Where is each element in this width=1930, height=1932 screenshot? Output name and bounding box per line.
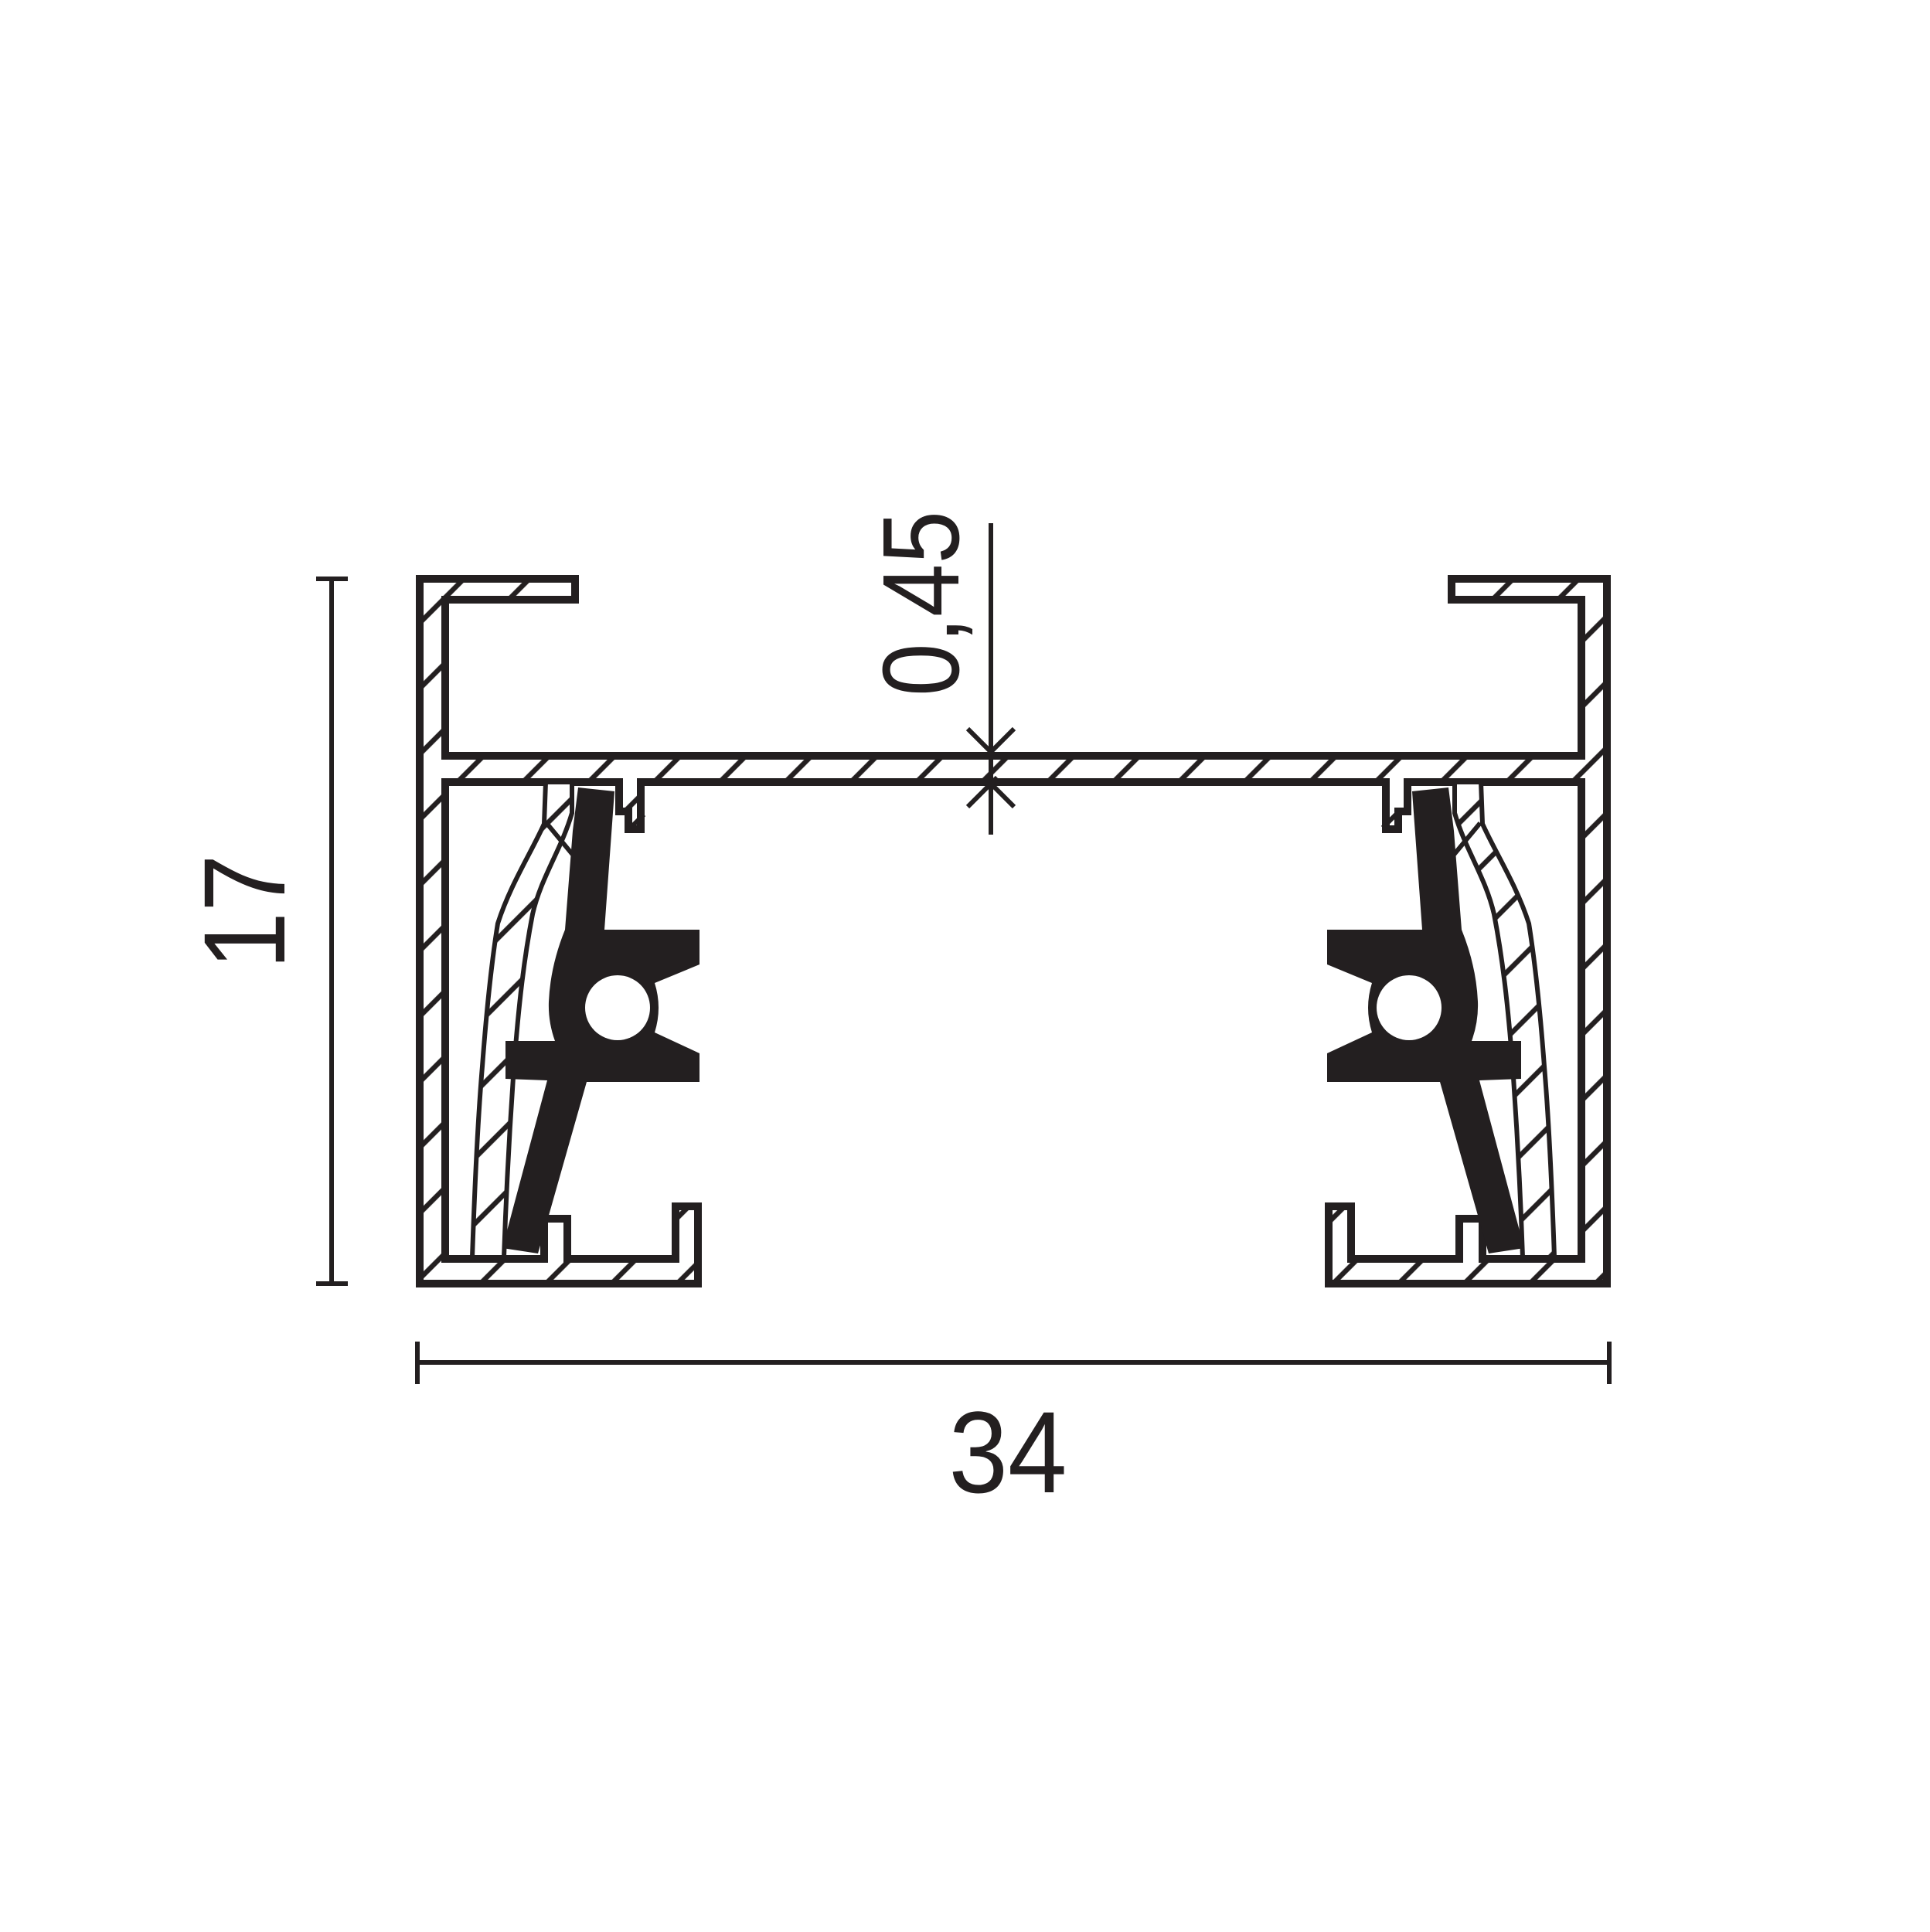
svg-text:0,45: 0,45: [859, 511, 982, 696]
svg-text:17: 17: [179, 855, 309, 970]
svg-text:34: 34: [949, 1387, 1067, 1517]
